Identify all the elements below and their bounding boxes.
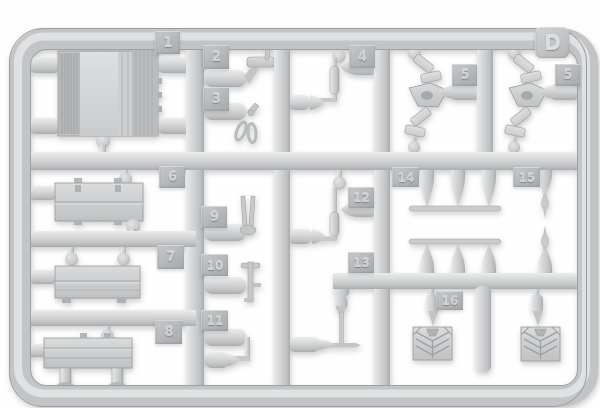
part-16-jack-block-right [521,288,560,361]
sprue-letter-plate: D [535,27,569,58]
part-number-tag-2: 2 [203,45,229,69]
part-number-tag-7: 7 [157,245,184,269]
part-number-tag-9: 9 [201,206,227,228]
runner-vertical-3 [374,40,390,396]
sprue-photo: 1 2 3 4 5 5 6 7 8 9 10 11 12 13 14 15 16… [0,0,600,408]
part-8-crate [26,326,132,388]
part-1-ribbed-block [28,46,192,153]
runner-horizontal-right-low [333,273,583,289]
runner-vertical-2 [274,40,290,396]
part-number-tag-4: 4 [349,45,375,68]
part-number-tag-11: 11 [201,310,228,331]
part-number-tag-8: 8 [155,320,182,344]
part-14-thin-rods [409,169,501,275]
runner-stub [475,286,491,372]
part-5-bracket-right [504,46,579,153]
part-number-tag-5b: 5 [555,64,580,86]
part-number-tag-15: 15 [513,167,540,187]
part-number-tag-16: 16 [436,291,463,310]
part-number-tag-14: 14 [392,167,419,187]
part-5-bracket-left [404,46,479,153]
part-11-l-rod [204,329,250,368]
part-6-stowage-box [28,168,143,234]
runner-vertical-4 [477,40,493,162]
runner-horizontal-main [20,152,588,170]
part-number-tag-6: 6 [159,166,185,188]
part-7-stowage-box [28,247,140,303]
part-15-spindle-pins [538,168,552,274]
part-number-tag-12: 12 [348,187,374,208]
part-number-tag-13: 13 [348,252,374,273]
part-number-tag-10: 10 [201,254,228,276]
part-number-tag-5a: 5 [452,64,477,86]
part-number-tag-1: 1 [155,31,180,54]
sprue-drawing [0,0,600,408]
part-number-tag-3: 3 [203,87,229,111]
